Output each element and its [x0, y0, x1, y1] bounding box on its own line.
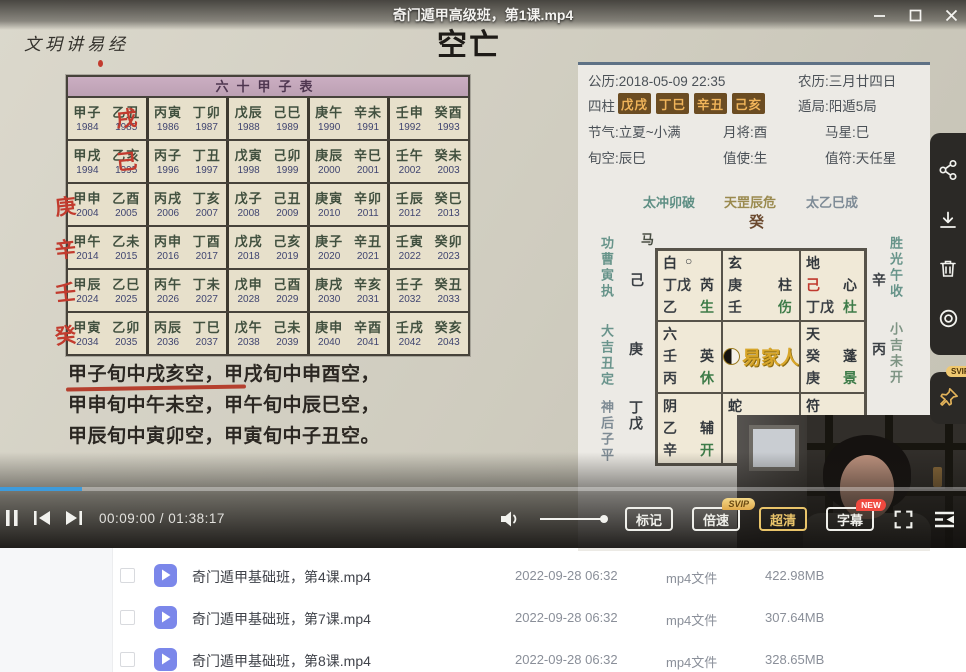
year: 2042 — [390, 337, 429, 348]
stem-branch: 辛酉 — [349, 317, 388, 336]
year: 1986 — [149, 122, 188, 133]
deity-char: 白 — [663, 253, 677, 273]
deity-char: 天 — [806, 324, 820, 344]
stem-branch: 庚寅 — [310, 188, 349, 207]
jiazi-cell: 庚午1990辛未1991 — [307, 98, 388, 139]
year: 2023 — [429, 251, 468, 262]
jiazi-pair: 丁丑1997 — [187, 141, 226, 182]
year: 2040 — [310, 337, 349, 348]
stem-branch: 壬辰 — [390, 188, 429, 207]
file-name: 奇门遁甲基础班，第4课.mp4 — [192, 567, 371, 587]
year: 1992 — [390, 122, 429, 133]
jiazi-pair: 戊辰1988 — [229, 98, 268, 139]
qimen-cell: 地己心丁戊杜 — [800, 250, 865, 321]
stem-branch: 壬子 — [390, 274, 429, 293]
file-checkbox[interactable] — [120, 610, 135, 625]
file-row[interactable]: 奇门遁甲基础班，第4课.mp42022-09-28 06:32mp4文件422.… — [0, 558, 966, 594]
file-name: 奇门遁甲基础班，第8课.mp4 — [192, 651, 371, 671]
stem-branch: 己巳 — [268, 102, 307, 121]
file-size: 328.65MB — [765, 652, 824, 667]
zhishi-value: 值使:生 — [723, 147, 767, 167]
jiazi-pair: 戊寅1998 — [229, 141, 268, 182]
year: 1994 — [68, 165, 107, 176]
horse-star-label: 马 — [641, 229, 654, 248]
maxing-value: 马星:巳 — [825, 121, 869, 141]
grid-right-stem: 丙 — [872, 339, 886, 359]
deity-char: 六 — [663, 324, 677, 344]
jiazi-pair: 丁亥2007 — [187, 184, 226, 225]
left-vertical-label: 功曹寅执 — [597, 236, 616, 300]
stem-branch: 己丑 — [268, 188, 307, 207]
grid-left-stem: 己 — [630, 270, 644, 290]
file-type: mp4文件 — [666, 652, 717, 671]
stem-branch: 丁卯 — [187, 102, 226, 121]
year: 1990 — [310, 122, 349, 133]
yinyang-icon — [723, 348, 740, 365]
jieqi-value: 节气:立夏~小满 — [588, 121, 681, 141]
volume-slider-knob[interactable] — [600, 515, 608, 523]
seek-bar-fill — [0, 487, 82, 491]
download-icon[interactable] — [938, 210, 958, 230]
grid-right-stem: 辛 — [872, 270, 886, 290]
year: 2007 — [187, 208, 226, 219]
jiazi-pair: 丁巳2037 — [187, 313, 226, 354]
cell-stems: 乙 — [663, 297, 677, 317]
share-icon[interactable] — [938, 159, 959, 181]
logo-text: 易家人 — [742, 343, 799, 370]
kongwang-line: 甲申旬中午未空，甲午旬中辰巳空， — [68, 390, 380, 421]
jiazi-cell: 甲午2014乙未2015 — [68, 227, 146, 268]
jiazi-pair: 己丑2009 — [268, 184, 307, 225]
right-vertical-label: 小吉未开 — [886, 322, 905, 386]
qimen-cell: 六壬英丙休 — [657, 321, 722, 392]
stem-branch: 戊寅 — [229, 145, 268, 164]
stem-branch: 庚戌 — [310, 274, 349, 293]
stem-branch: 乙卯 — [107, 317, 146, 336]
star-char: 蓬 — [843, 346, 857, 366]
jiazi-pair: 丙午2026 — [149, 270, 188, 311]
jiazi-pair: 庚午1990 — [310, 98, 349, 139]
jiazi-pair: 癸丑2033 — [429, 270, 468, 311]
year: 2012 — [390, 208, 429, 219]
jiazi-pair: 己酉2029 — [268, 270, 307, 311]
year: 2036 — [149, 337, 188, 348]
maximize-button[interactable] — [909, 9, 922, 22]
playlist-button[interactable] — [933, 510, 956, 529]
jiazi-row: 甲寅2034乙卯2035丙辰2036丁巳2037戊午2038己未2039庚申20… — [68, 311, 468, 354]
pin-icon[interactable] — [937, 387, 959, 409]
chart-top-label: 太乙巳成 — [806, 192, 858, 211]
file-date: 2022-09-28 06:32 — [515, 652, 618, 667]
jiazi-pair: 丁未2027 — [187, 270, 226, 311]
video-file-icon — [154, 648, 177, 671]
jiazi-row: 甲辰2024乙巳2025丙午2026丁未2027戊申2028己酉2029庚戌20… — [68, 268, 468, 311]
jiazi-cell: 戊寅1998己卯1999 — [226, 141, 307, 182]
stem-branch: 庚辰 — [310, 145, 349, 164]
file-date: 2022-09-28 06:32 — [515, 610, 618, 625]
stem-branch: 甲子 — [68, 102, 107, 121]
year: 2019 — [268, 251, 307, 262]
stem-branch: 丁巳 — [187, 317, 226, 336]
jiazi-pair: 癸卯2023 — [429, 227, 468, 268]
year: 1993 — [429, 122, 468, 133]
jiazi-pair: 庚辰2000 — [310, 141, 349, 182]
video-file-icon — [154, 564, 177, 587]
close-button[interactable] — [945, 9, 958, 22]
jiazi-cell: 庚申2040辛酉2041 — [307, 313, 388, 354]
stem-branch: 丙戌 — [149, 188, 188, 207]
jiazi-pair: 甲子1984 — [68, 98, 107, 139]
file-row[interactable]: 奇门遁甲基础班，第7课.mp42022-09-28 06:32mp4文件307.… — [0, 600, 966, 636]
year: 1989 — [268, 122, 307, 133]
deity-char: 玄 — [728, 253, 742, 273]
jiazi-pair: 庚寅2010 — [310, 184, 349, 225]
jiazi-cell: 戊申2028己酉2029 — [226, 270, 307, 311]
jiazi-pair: 丙子1996 — [149, 141, 188, 182]
stem-branch: 辛巳 — [349, 145, 388, 164]
pin-svip-badge: SVIP — [946, 366, 966, 377]
previous-button[interactable] — [33, 510, 52, 526]
cell-stems: 庚 — [806, 368, 820, 388]
jiazi-cell: 壬申1992癸酉1993 — [387, 98, 468, 139]
stem-branch: 己酉 — [268, 274, 307, 293]
player-gradient-shade — [0, 452, 966, 548]
jiazi-cell: 丙午2026丁未2027 — [146, 270, 227, 311]
jiazi-pair: 戊午2038 — [229, 313, 268, 354]
red-dot-mark — [98, 60, 103, 67]
jiazi-cell: 庚子2020辛丑2021 — [307, 227, 388, 268]
handwritten-red-mark: 壬 — [53, 276, 77, 308]
year: 2031 — [349, 294, 388, 305]
jiazi-pair: 己巳1989 — [268, 98, 307, 139]
jiazi-pair: 癸巳2013 — [429, 184, 468, 225]
video-watermark: 文玥讲易经 — [24, 30, 129, 55]
zhifu-value: 值符:天任星 — [825, 147, 896, 167]
jiazi-cell: 甲辰2024乙巳2025 — [68, 270, 146, 311]
stem-branch: 癸未 — [429, 145, 468, 164]
jiazi-pair: 丙寅1986 — [149, 98, 188, 139]
window-title: 奇门遁甲高级班，第1课.mp4 — [0, 5, 966, 25]
stem-branch: 丙申 — [149, 231, 188, 250]
seek-bar[interactable] — [0, 487, 966, 491]
jiazi-cell: 庚戌2030辛亥2031 — [307, 270, 388, 311]
svip-badge: SVIP — [722, 498, 755, 510]
jiazi-pair: 壬午2002 — [390, 141, 429, 182]
year: 2010 — [310, 208, 349, 219]
jiazi-pair: 戊戌2018 — [229, 227, 268, 268]
year: 2002 — [390, 165, 429, 176]
jiazi-pair: 辛亥2031 — [349, 270, 388, 311]
jiazi-table: 六十甲子表 甲子1984乙丑1985丙寅1986丁卯1987戊辰1988己巳19… — [66, 75, 470, 356]
jiazi-pair: 丁卯1987 — [187, 98, 226, 139]
mark-button[interactable]: 标记 — [625, 507, 673, 531]
qimen-cell: 白○丁戊芮乙生 — [657, 250, 722, 321]
gate-char: 景 — [843, 368, 857, 388]
star-char: 柱 — [778, 275, 792, 295]
year: 1991 — [349, 122, 388, 133]
circle-mark: ○ — [685, 254, 692, 268]
jiazi-pair: 戊子2008 — [229, 184, 268, 225]
kongwang-lines: 甲子旬中戌亥空，甲戌旬中申酉空，甲申旬中午未空，甲午旬中辰巳空，甲辰旬中寅卯空，… — [68, 359, 380, 452]
jiazi-pair: 乙巳2025 — [107, 270, 146, 311]
file-list: 奇门遁甲基础班，第4课.mp42022-09-28 06:32mp4文件422.… — [0, 548, 966, 672]
file-row[interactable]: 奇门遁甲基础班，第8课.mp42022-09-28 06:32mp4文件328.… — [0, 642, 966, 672]
jiazi-row: 甲戌1994乙亥1995丙子1996丁丑1997戊寅1998己卯1999庚辰20… — [68, 139, 468, 182]
jiazi-cell: 丙戌2006丁亥2007 — [146, 184, 227, 225]
stem-branch: 庚子 — [310, 231, 349, 250]
jiazi-pair: 乙卯2035 — [107, 313, 146, 354]
cell-stems: 丙 — [663, 368, 677, 388]
handwritten-red-mark: 癸 — [53, 319, 77, 351]
file-size: 422.98MB — [765, 568, 824, 583]
jiazi-pair: 壬辰2012 — [390, 184, 429, 225]
stem-branch: 庚申 — [310, 317, 349, 336]
playback-time: 00:09:00 / 01:38:17 — [99, 511, 225, 526]
dunju-value: 遁局:阳遁5局 — [798, 95, 877, 115]
year: 2018 — [229, 251, 268, 262]
pause-button[interactable] — [5, 509, 19, 527]
chart-top-label: 天罡辰危 — [724, 192, 776, 211]
handwritten-red-mark: 己 — [114, 145, 138, 177]
year: 1996 — [149, 165, 188, 176]
jiazi-cell: 戊午2038己未2039 — [226, 313, 307, 354]
jiazi-pair: 乙未2015 — [107, 227, 146, 268]
volume-icon[interactable] — [499, 509, 521, 529]
qimen-cell: 易家人 — [722, 321, 800, 392]
year: 2028 — [229, 294, 268, 305]
jiazi-row: 甲申2004乙酉2005丙戌2006丁亥2007戊子2008己丑2009庚寅20… — [68, 182, 468, 225]
jiazi-pair: 己亥2019 — [268, 227, 307, 268]
jiazi-pair: 己未2039 — [268, 313, 307, 354]
year: 2025 — [107, 294, 146, 305]
jiazi-pair: 辛巳2001 — [349, 141, 388, 182]
jiazi-pair: 辛丑2021 — [349, 227, 388, 268]
deity-char: 阴 — [663, 396, 677, 416]
jiazi-pair: 癸酉1993 — [429, 98, 468, 139]
stem-branch: 壬寅 — [390, 231, 429, 250]
jiazi-pair: 丙辰2036 — [149, 313, 188, 354]
year: 2008 — [229, 208, 268, 219]
stem-branch: 壬戌 — [390, 317, 429, 336]
file-type: mp4文件 — [666, 568, 717, 587]
yuejiang-value: 月将:酉 — [723, 121, 767, 141]
jiazi-cell: 丙子1996丁丑1997 — [146, 141, 227, 182]
pillar-badge: 辛丑 — [694, 93, 727, 114]
jiazi-cell: 壬午2002癸未2003 — [387, 141, 468, 182]
year: 2037 — [187, 337, 226, 348]
cell-stems: 壬 — [728, 297, 742, 317]
handwritten-red-mark: 戌 — [114, 102, 138, 134]
year: 2005 — [107, 208, 146, 219]
year: 2017 — [187, 251, 226, 262]
year: 1998 — [229, 165, 268, 176]
year: 2011 — [349, 208, 388, 219]
stem-branch: 辛未 — [349, 102, 388, 121]
stem-branch: 丙子 — [149, 145, 188, 164]
stem-branch: 丙辰 — [149, 317, 188, 336]
stem-branch: 戊子 — [229, 188, 268, 207]
speed-button[interactable]: 倍速 SVIP — [692, 507, 740, 531]
file-type: mp4文件 — [666, 610, 717, 629]
year: 1997 — [187, 165, 226, 176]
stem-branch: 乙巳 — [107, 274, 146, 293]
jiazi-pair: 丙戌2006 — [149, 184, 188, 225]
jiazi-cell: 戊辰1988己巳1989 — [226, 98, 307, 139]
file-size: 307.64MB — [765, 610, 824, 625]
year: 1987 — [187, 122, 226, 133]
app-window: 文玥讲易经 空亡 六十甲子表 甲子1984乙丑1985丙寅1986丁卯1987戊… — [0, 0, 966, 672]
jiazi-pair: 壬戌2042 — [390, 313, 429, 354]
year: 2026 — [149, 294, 188, 305]
year: 2022 — [390, 251, 429, 262]
jiazi-pair: 辛未1991 — [349, 98, 388, 139]
jiazi-pair: 壬申1992 — [390, 98, 429, 139]
stem-branch: 癸亥 — [429, 317, 468, 336]
jiazi-table-rows: 甲子1984乙丑1985丙寅1986丁卯1987戊辰1988己巳1989庚午19… — [68, 98, 468, 354]
year: 2041 — [349, 337, 388, 348]
volume-slider[interactable] — [540, 518, 606, 520]
year: 2027 — [187, 294, 226, 305]
cell-stems: 癸 — [806, 346, 820, 366]
deity-char: 符 — [806, 396, 820, 416]
jiazi-pair: 庚申2040 — [310, 313, 349, 354]
jiazi-cell: 壬辰2012癸巳2013 — [387, 184, 468, 225]
pillar-badge: 己亥 — [732, 93, 765, 114]
qimen-cell: 天癸蓬庚景 — [800, 321, 865, 392]
jiazi-cell: 甲寅2034乙卯2035 — [68, 313, 146, 354]
file-date: 2022-09-28 06:32 — [515, 568, 618, 583]
stem-branch: 癸巳 — [429, 188, 468, 207]
stem-branch: 己卯 — [268, 145, 307, 164]
stem-branch: 庚午 — [310, 102, 349, 121]
stem-branch: 丁未 — [187, 274, 226, 293]
gongli-date: 公历:2018-05-09 22:35 — [588, 70, 725, 90]
stem-branch: 癸卯 — [429, 231, 468, 250]
stem-branch: 己未 — [268, 317, 307, 336]
subtitle-button[interactable]: 字幕 NEW — [826, 507, 874, 531]
pillar-badge: 戊戌 — [618, 93, 651, 114]
jiazi-cell: 庚辰2000辛巳2001 — [307, 141, 388, 182]
stem-branch: 壬午 — [390, 145, 429, 164]
year: 2021 — [349, 251, 388, 262]
year: 2001 — [349, 165, 388, 176]
qimen-cell: 玄庚柱壬伤 — [722, 250, 800, 321]
jiazi-pair: 丙申2016 — [149, 227, 188, 268]
right-vertical-label: 胜光午收 — [886, 236, 905, 300]
nongli-date: 农历:三月廿四日 — [798, 70, 896, 90]
stem-branch: 丙寅 — [149, 102, 188, 121]
side-toolbar — [930, 133, 966, 355]
cell-stems: 己 — [806, 275, 820, 295]
deity-char: 地 — [806, 253, 820, 273]
year: 2006 — [149, 208, 188, 219]
jiazi-cell: 甲申2004乙酉2005 — [68, 184, 146, 225]
jiazi-pair: 甲戌1994 — [68, 141, 107, 182]
stem-branch: 己亥 — [268, 231, 307, 250]
jiazi-pair: 壬子2032 — [390, 270, 429, 311]
stem-branch: 甲戌 — [68, 145, 107, 164]
stem-branch: 乙酉 — [107, 188, 146, 207]
jiazi-pair: 丁酉2017 — [187, 227, 226, 268]
jiazi-cell: 庚寅2010辛卯2011 — [307, 184, 388, 225]
stem-branch: 丙午 — [149, 274, 188, 293]
star-char: 英 — [700, 346, 714, 366]
deity-char: 蛇 — [728, 396, 742, 416]
cell-stems: 丁戊 — [806, 297, 834, 317]
jiazi-cell: 壬子2032癸丑2033 — [387, 270, 468, 311]
year: 2016 — [149, 251, 188, 262]
handwritten-red-mark: 庚 — [53, 190, 77, 222]
stem-branch: 辛卯 — [349, 188, 388, 207]
jiazi-cell: 戊子2008己丑2009 — [226, 184, 307, 225]
jiazi-pair: 癸亥2043 — [429, 313, 468, 354]
jiazi-row: 甲子1984乙丑1985丙寅1986丁卯1987戊辰1988己巳1989庚午19… — [68, 98, 468, 139]
year: 2000 — [310, 165, 349, 176]
year: 2038 — [229, 337, 268, 348]
jiazi-cell: 丙寅1986丁卯1987 — [146, 98, 227, 139]
star-char: 心 — [843, 275, 857, 295]
left-vertical-label: 大吉丑定 — [597, 324, 616, 388]
year: 2009 — [268, 208, 307, 219]
year: 1984 — [68, 122, 107, 133]
title-bar: 奇门遁甲高级班，第1课.mp4 — [0, 0, 966, 30]
grid-left-stem: 丁戊 — [626, 400, 646, 432]
year: 2013 — [429, 208, 468, 219]
chart-top-stem: 癸 — [749, 211, 764, 232]
gate-char: 伤 — [778, 297, 792, 317]
record-icon[interactable] — [938, 308, 959, 329]
jiazi-pair: 辛酉2041 — [349, 313, 388, 354]
xunkong-value: 旬空:辰巳 — [588, 147, 646, 167]
jiazi-pair: 癸未2003 — [429, 141, 468, 182]
file-checkbox[interactable] — [120, 652, 135, 667]
sizhu-label: 四柱 — [588, 95, 615, 115]
stem-branch: 癸丑 — [429, 274, 468, 293]
handwritten-red-mark: 辛 — [53, 233, 77, 265]
stem-branch: 壬申 — [390, 102, 429, 121]
jiazi-pair: 戊申2028 — [229, 270, 268, 311]
stem-branch: 戊辰 — [229, 102, 268, 121]
chart-top-label: 太冲卯破 — [643, 192, 695, 211]
next-button[interactable] — [64, 510, 83, 526]
stem-branch: 丁酉 — [187, 231, 226, 250]
gate-char: 生 — [700, 297, 714, 317]
jiazi-pair: 壬寅2022 — [390, 227, 429, 268]
year: 2039 — [268, 337, 307, 348]
stem-branch: 丁亥 — [187, 188, 226, 207]
year: 2043 — [429, 337, 468, 348]
cell-stems: 丁戊 — [663, 275, 691, 295]
year: 1999 — [268, 165, 307, 176]
file-checkbox[interactable] — [120, 568, 135, 583]
stem-branch: 戊戌 — [229, 231, 268, 250]
trash-icon[interactable] — [938, 258, 958, 279]
quality-button[interactable]: 超清 — [759, 507, 807, 531]
stem-branch: 乙未 — [107, 231, 146, 250]
kongwang-line: 甲辰旬中寅卯空，甲寅旬中子丑空。 — [68, 421, 380, 452]
video-file-icon — [154, 606, 177, 629]
jiazi-cell: 壬戌2042癸亥2043 — [387, 313, 468, 354]
year: 1988 — [229, 122, 268, 133]
minimize-button[interactable] — [873, 9, 886, 22]
cell-stems: 壬 — [663, 346, 677, 366]
fullscreen-button[interactable] — [893, 509, 914, 530]
yijiaren-logo: 易家人 — [723, 322, 799, 391]
jiazi-pair: 庚戌2030 — [310, 270, 349, 311]
jiazi-cell: 戊戌2018己亥2019 — [226, 227, 307, 268]
video-canvas[interactable]: 文玥讲易经 空亡 六十甲子表 甲子1984乙丑1985丙寅1986丁卯1987戊… — [0, 0, 966, 548]
year: 2032 — [390, 294, 429, 305]
